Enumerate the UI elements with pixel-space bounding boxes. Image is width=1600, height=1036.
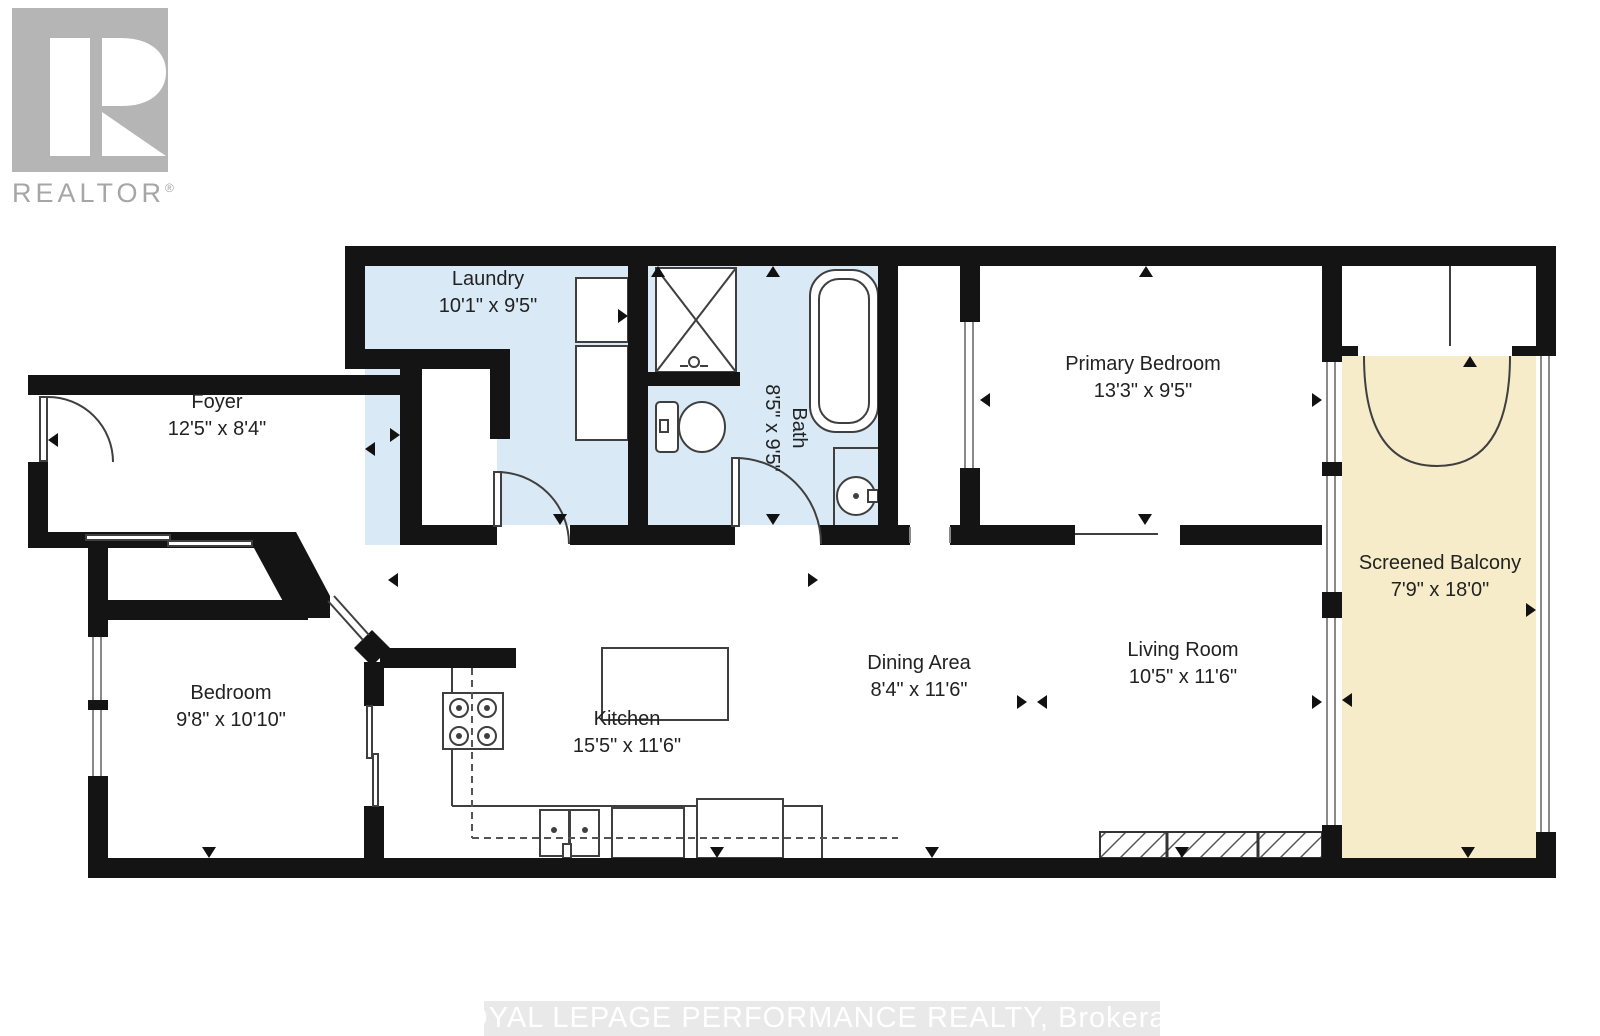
foyer-closet-floor (422, 369, 497, 545)
room-dimensions: 10'1" x 9'5" (439, 293, 538, 320)
room-label-foyer: Foyer12'5" x 8'4" (168, 389, 267, 443)
floor-plan-drawing (0, 0, 1600, 1036)
washer-dryer-icon (576, 278, 628, 440)
room-name: Bedroom (176, 680, 286, 707)
room-label-living-room: Living Room10'5" x 11'6" (1127, 637, 1238, 691)
entry-door-icon (28, 395, 113, 462)
balcony-storage-floor (1342, 266, 1536, 346)
brokerage-watermark-text: ROYAL LEPAGE PERFORMANCE REALTY, Brokera… (443, 1002, 1201, 1035)
room-name: Bath (785, 384, 812, 471)
room-name: Laundry (439, 266, 538, 293)
primary-entry-pocket-door (1075, 525, 1180, 545)
balcony-floor (1342, 356, 1536, 858)
room-label-laundry: Laundry10'1" x 9'5" (439, 266, 538, 320)
bedroom-sliding-door (367, 706, 378, 806)
bedroom-diagonal-sliding-door (328, 596, 369, 640)
room-label-kitchen: Kitchen15'5" x 11'6" (573, 706, 681, 760)
room-label-primary-bedroom: Primary Bedroom13'3" x 9'5" (1065, 351, 1221, 405)
floor-plan-page: REALTOR® (0, 0, 1600, 1036)
toilet-icon (656, 402, 725, 452)
room-name: Living Room (1127, 637, 1238, 664)
room-dimensions: 12'5" x 8'4" (168, 416, 267, 443)
primary-closet-sliding-door (960, 322, 980, 468)
room-dimensions: 8'4" x 11'6" (867, 677, 970, 704)
balcony-screen-wall (1536, 356, 1556, 832)
room-name: Foyer (168, 389, 267, 416)
room-name: Dining Area (867, 650, 970, 677)
room-dimensions: 10'5" x 11'6" (1127, 664, 1238, 691)
room-dimensions: 15'5" x 11'6" (573, 733, 681, 760)
room-dimensions: 13'3" x 9'5" (1065, 378, 1221, 405)
room-label-screened-balcony: Screened Balcony7'9" x 18'0" (1359, 550, 1521, 604)
room-dimensions: 9'8" x 10'10" (176, 707, 286, 734)
hall-closet-opening (910, 525, 950, 545)
living-room-hatched-ledge (1100, 832, 1322, 858)
room-dimensions: 8'5" x 9'5" (758, 384, 785, 471)
bedroom-window-icon (88, 637, 108, 776)
kitchen-cabinets (612, 799, 783, 858)
room-dimensions: 7'9" x 18'0" (1359, 577, 1521, 604)
bathtub-icon (810, 270, 878, 432)
shower-icon (648, 268, 740, 386)
room-name: Screened Balcony (1359, 550, 1521, 577)
room-label-bath: Bath8'5" x 9'5" (758, 384, 812, 471)
room-name: Kitchen (573, 706, 681, 733)
brokerage-watermark: ROYAL LEPAGE PERFORMANCE REALTY, Brokera… (484, 1001, 1160, 1036)
room-label-bedroom: Bedroom9'8" x 10'10" (176, 680, 286, 734)
room-name: Primary Bedroom (1065, 351, 1221, 378)
kitchen-sink-icon (540, 810, 599, 858)
room-label-dining-area: Dining Area8'4" x 11'6" (867, 650, 970, 704)
